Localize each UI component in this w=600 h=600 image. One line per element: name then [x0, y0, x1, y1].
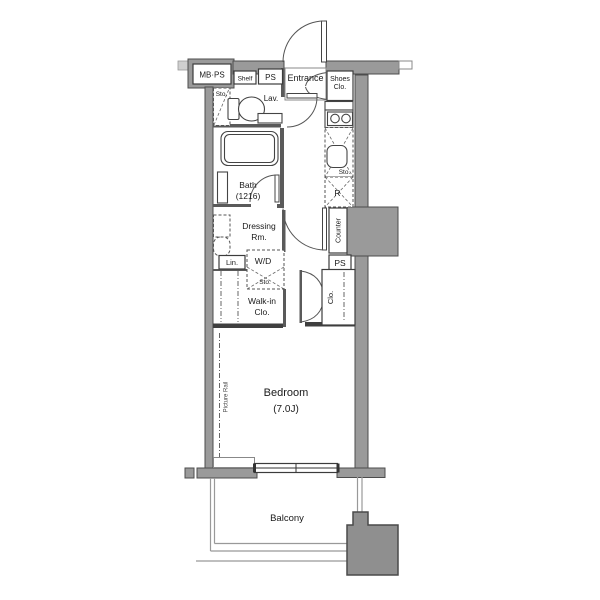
label-picture-rail: Picture Rail	[224, 382, 230, 413]
label-sto-lav: Sto.	[216, 91, 228, 98]
label-shelf: Shelf	[238, 76, 253, 83]
right-wall	[355, 75, 368, 468]
wall-wic-corridor	[283, 289, 286, 327]
label-sto-wd: Sto.	[259, 279, 271, 286]
lav-vanity	[258, 114, 282, 124]
label-dressing-2: Rm.	[251, 232, 267, 242]
left-wall	[205, 87, 213, 468]
wic-door-arc-bottom	[301, 298, 324, 323]
wall-bath-dressing	[213, 204, 251, 207]
bedroom-area	[214, 333, 340, 473]
label-sto-kitchen: Sto.	[339, 169, 351, 176]
entrance-door-arc	[283, 21, 324, 62]
burner-icon-left	[331, 114, 340, 123]
wall-corridor-clo	[300, 270, 303, 323]
sink-icon	[327, 146, 347, 168]
pillar-bottom-right	[347, 512, 398, 575]
label-counter: Counter	[336, 217, 343, 243]
label-mbps: MB·PS	[199, 71, 224, 80]
label-wd: W/D	[255, 256, 272, 266]
pillar-mid-right	[347, 207, 398, 256]
label-lin: Lin.	[226, 258, 238, 267]
lav-door-leaf	[287, 94, 317, 99]
floorplan-svg: MB·PS Shelf PS Entrance Shoes Clo. Sto. …	[0, 0, 600, 600]
dressing-vanity-bowl	[214, 237, 231, 256]
bottom-wall-left-segment	[197, 468, 257, 478]
wic-door-arc-top	[301, 271, 324, 297]
toilet-tank-icon	[228, 99, 239, 120]
label-shoes-1: Shoes	[330, 76, 350, 83]
wall-stub-top-left	[178, 61, 189, 70]
label-ps-top: PS	[265, 73, 276, 82]
label-bath-1: Bath	[239, 180, 257, 190]
label-bedroom-2: (7.0J)	[273, 404, 299, 415]
bath-door-leaf	[275, 175, 279, 202]
label-wic-2: Clo.	[254, 307, 269, 317]
label-wic-1: Walk-in	[248, 296, 276, 306]
bathtub-inner	[225, 135, 275, 163]
label-clo: Clo.	[326, 291, 335, 304]
kitchen-counter-top	[325, 102, 353, 111]
bedroom-top-wall-left	[213, 324, 283, 329]
window-cap-left	[253, 464, 256, 473]
window-cap-right	[337, 464, 340, 473]
wall-stub-top-right	[399, 61, 412, 69]
bottom-wall-right-segment	[337, 468, 385, 478]
dressing-vanity-top	[214, 215, 231, 237]
wall-bath-hall	[280, 128, 284, 206]
window-side-step	[214, 458, 255, 468]
hall-door-leaf	[323, 208, 327, 250]
label-shoes-2: Clo.	[334, 84, 347, 91]
label-lav: Lav.	[264, 94, 279, 103]
label-ps-mid: PS	[334, 258, 346, 268]
label-entrance: Entrance	[287, 73, 323, 83]
label-balcony: Balcony	[270, 513, 304, 524]
floorplan-page: MB·PS Shelf PS Entrance Shoes Clo. Sto. …	[0, 0, 600, 600]
lav-door-arc	[287, 97, 317, 127]
walls	[178, 59, 412, 478]
hall-door-arc	[283, 209, 325, 251]
entrance-door-leaf	[322, 21, 327, 62]
label-bedroom-1: Bedroom	[264, 387, 309, 399]
label-fridge: R	[334, 188, 340, 198]
bottom-wall-cap-left	[185, 468, 194, 478]
label-dressing-1: Dressing	[242, 221, 276, 231]
burner-icon-right	[342, 114, 351, 123]
balcony-area	[196, 477, 398, 575]
wall-corner-dressing	[277, 204, 284, 208]
bath-counter	[218, 172, 228, 203]
label-bath-2: (1216)	[236, 191, 261, 201]
